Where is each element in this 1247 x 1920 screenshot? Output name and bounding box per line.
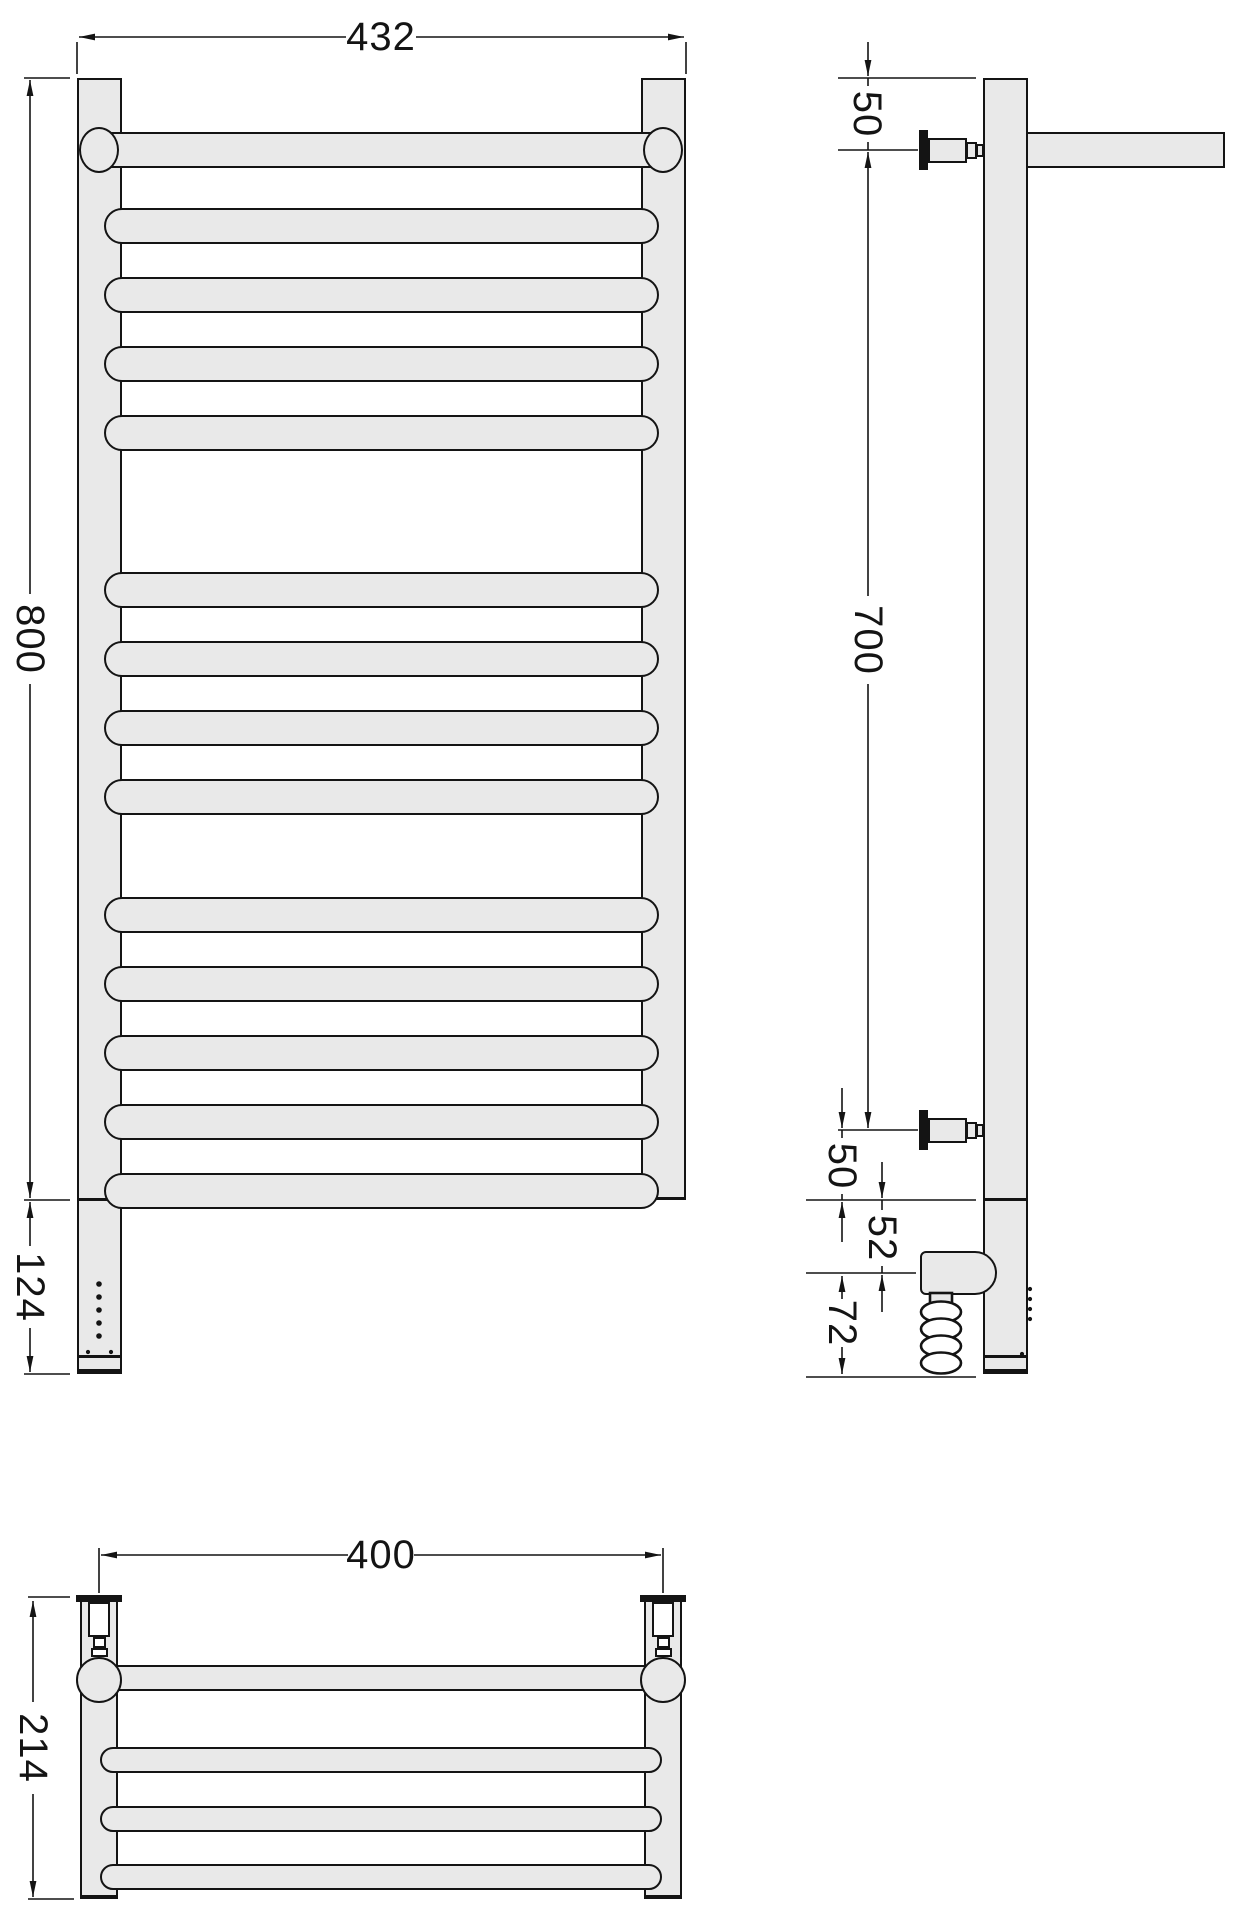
dim-label-plan-width: 400 [321,1533,441,1577]
dim-label-plan-depth: 214 [11,1688,55,1808]
side-led-dots [1020,1287,1032,1356]
dimension-lines-layer [0,0,1247,1920]
dim-label-side-span: 700 [846,580,890,700]
dim-label-front-heater: 124 [8,1227,52,1347]
dim-label-front-width: 432 [321,15,441,59]
dim-label-front-height: 800 [8,579,52,699]
front-led-dots [86,1281,113,1354]
dim-label-side-heater: 72 [820,1263,864,1383]
dim-label-side-bottom: 50 [820,1106,864,1226]
dim-label-side-top: 50 [845,54,889,174]
drawing-canvas: 432 800 124 50 700 50 52 72 400 214 [0,0,1247,1920]
dim-label-side-neck: 52 [860,1178,904,1298]
coiled-cable [921,1293,961,1374]
